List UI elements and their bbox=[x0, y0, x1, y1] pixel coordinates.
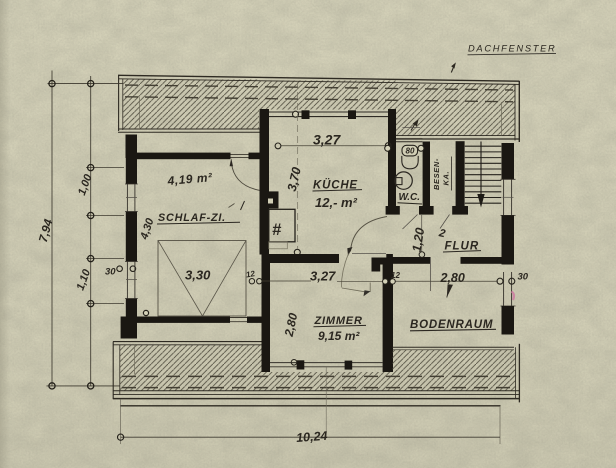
svg-text:3,30: 3,30 bbox=[185, 268, 211, 283]
svg-text:10,24: 10,24 bbox=[296, 429, 328, 445]
svg-text:DACHFENSTER: DACHFENSTER bbox=[468, 44, 556, 54]
svg-text:SCHLAF-ZI.: SCHLAF-ZI. bbox=[158, 212, 226, 224]
svg-text:3,27: 3,27 bbox=[313, 132, 341, 148]
svg-text:KA.: KA. bbox=[442, 171, 451, 186]
svg-text:12: 12 bbox=[391, 271, 400, 280]
svg-text:80: 80 bbox=[406, 147, 415, 156]
svg-text:9,15 m²: 9,15 m² bbox=[318, 329, 360, 343]
svg-text:12,- m²: 12,- m² bbox=[315, 195, 358, 210]
svg-text:2,80: 2,80 bbox=[440, 271, 465, 285]
svg-text:30: 30 bbox=[518, 272, 529, 283]
svg-text:30: 30 bbox=[105, 267, 116, 278]
svg-text:BESEN-: BESEN- bbox=[432, 158, 441, 190]
svg-text:W.C.: W.C. bbox=[399, 192, 420, 203]
svg-text:3,27: 3,27 bbox=[310, 269, 336, 284]
svg-text:#: # bbox=[272, 221, 282, 239]
